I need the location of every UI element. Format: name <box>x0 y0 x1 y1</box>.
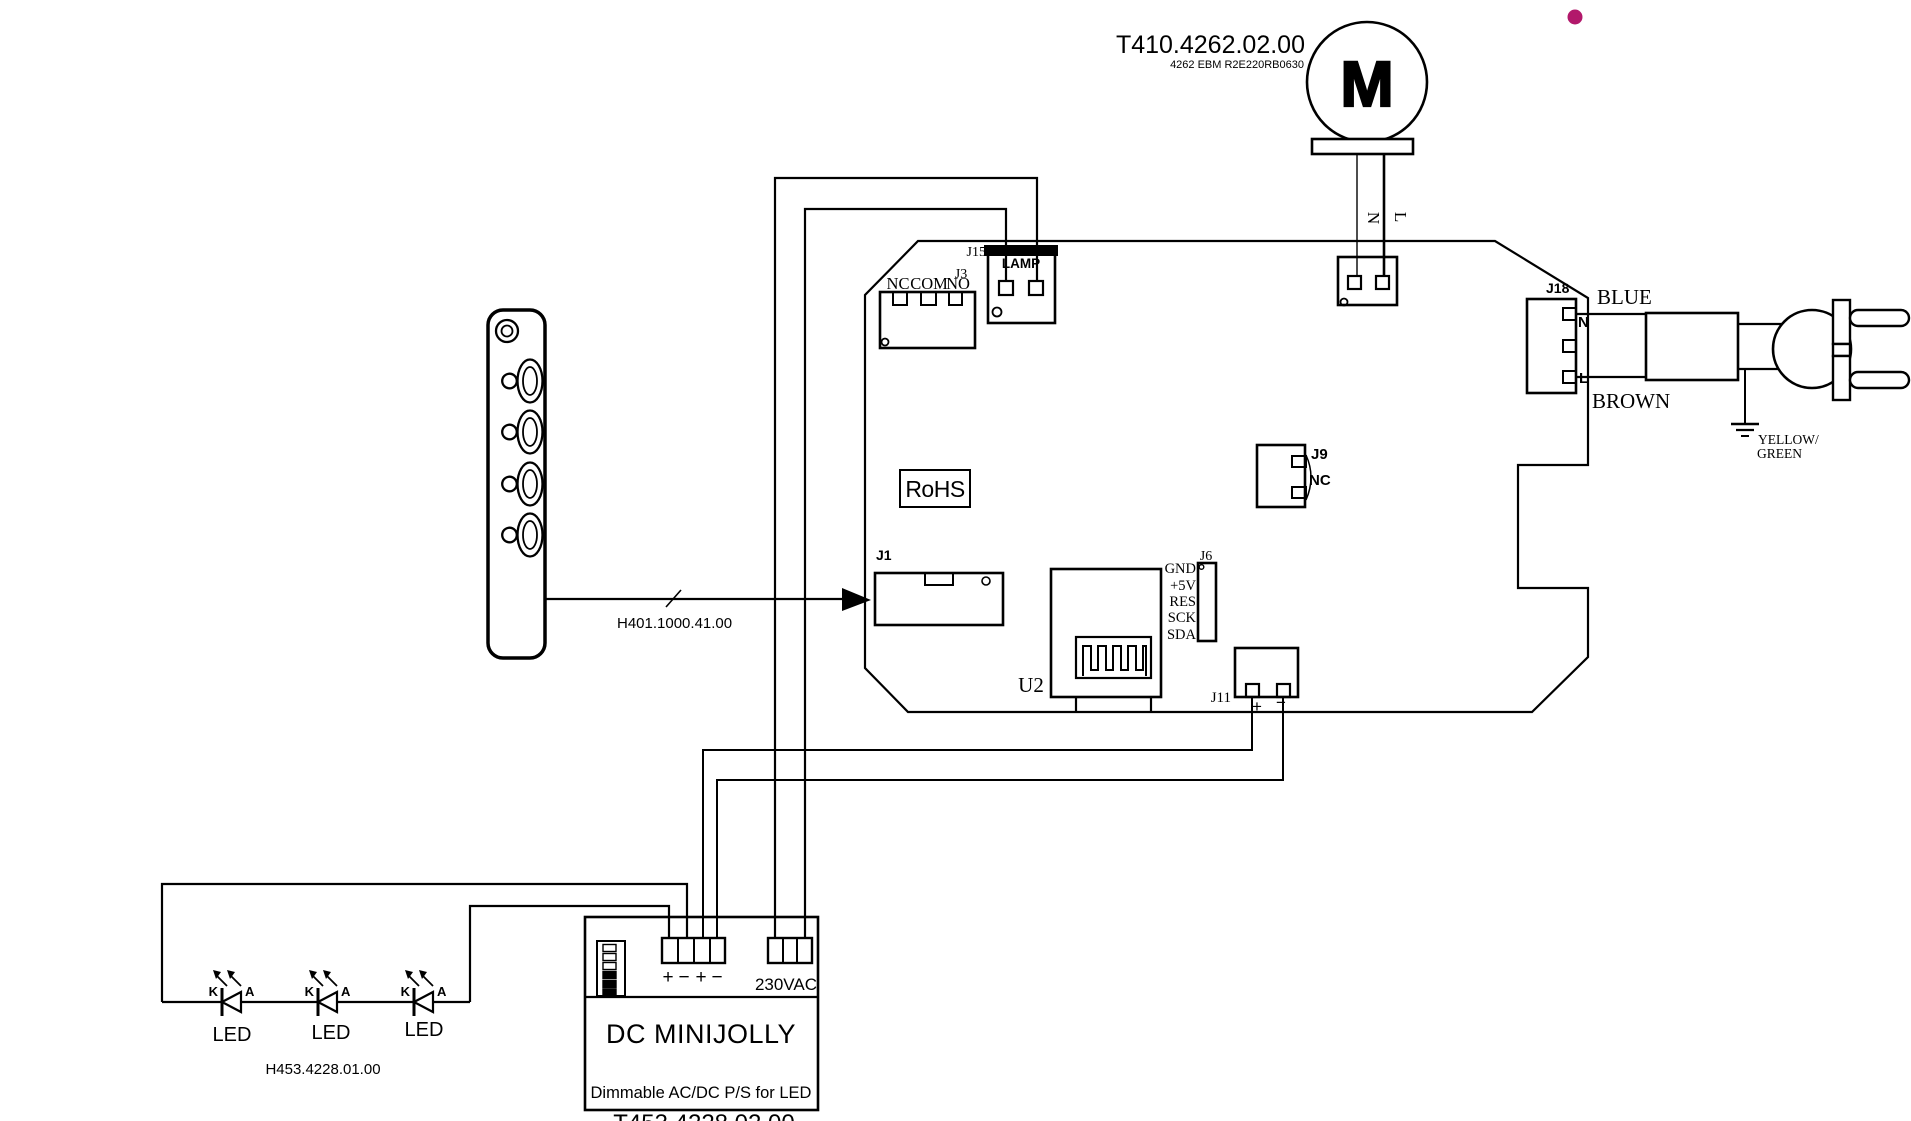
led-label: LED <box>405 1019 444 1041</box>
j11-minus-label: − <box>1276 693 1286 712</box>
annotation-dot <box>1568 10 1583 25</box>
led-diode <box>318 992 337 1012</box>
motor-connector <box>1338 257 1397 306</box>
j1-connector: J1 <box>875 547 1003 625</box>
j3-pin-no: NO <box>946 274 970 293</box>
motor-assembly: M N L <box>1307 22 1427 306</box>
remote-cable: H401.1000.41.00 <box>545 588 871 632</box>
lamp-pin-left <box>999 281 1013 295</box>
j11-pin-plus <box>1246 684 1259 697</box>
led-a-label: A <box>245 984 255 999</box>
psu-dc-terminal-block <box>662 938 725 963</box>
led-k-label: K <box>209 984 219 999</box>
keypad-indicator-inner <box>502 326 513 337</box>
j6-pin-sda: SDA <box>1167 627 1197 643</box>
j3-pin1 <box>893 292 907 305</box>
part-number-title: T410.4262.02.00 <box>1116 31 1305 59</box>
j9-nc-label: NC <box>1309 472 1331 489</box>
j6-pin-res: RES <box>1169 594 1196 610</box>
led-supply-wire <box>470 906 669 1002</box>
lamp-pin1-mark <box>993 308 1002 317</box>
relay-connector-j3: J3 NC COM NO <box>880 267 975 348</box>
keypad-button-1[interactable] <box>502 360 542 403</box>
psu-name: DC MINIJOLLY <box>606 1019 796 1049</box>
board-outline <box>865 241 1588 712</box>
j18-pin-n <box>1563 308 1576 320</box>
psu-minijolly: + − + − 230VAC DC MINIJOLLY Dimmable AC/… <box>585 917 818 1121</box>
j6-pin1-mark <box>1199 565 1204 570</box>
rohs-mark: RoHS <box>900 470 970 507</box>
j11-plus-label: + <box>1252 697 1262 716</box>
j6-pin-gnd: GND <box>1165 561 1196 577</box>
earth-label-line1: YELLOW/ <box>1758 432 1819 447</box>
brown-wire-label: BROWN <box>1592 389 1670 413</box>
led-label: LED <box>312 1022 351 1044</box>
led-symbol-1: K A LED <box>209 970 255 1046</box>
dc-terminal-4: − <box>711 967 722 988</box>
j18-pin-mid <box>1563 340 1576 352</box>
cord-block <box>1646 313 1738 380</box>
keypad-button-3[interactable] <box>502 463 542 506</box>
part-number-subtitle: 4262 EBM R2E220RB0630 <box>1170 59 1304 71</box>
j11-connector: J11 + − <box>703 648 1298 938</box>
u2-socket-comb <box>1083 646 1146 676</box>
psu-part-number: T453.4228.02.00 <box>613 1110 795 1121</box>
lamp-label: LAMP <box>1002 256 1040 271</box>
led-symbol-2: K A LED <box>305 970 351 1044</box>
dc-terminal-2: − <box>678 967 689 988</box>
j1-body <box>875 573 1003 625</box>
cable-arrowhead <box>842 588 871 611</box>
motor-base <box>1312 139 1413 154</box>
j15-label: J15 <box>967 245 986 260</box>
led-a-label: A <box>341 984 351 999</box>
led-symbol-3: K A LED <box>401 970 447 1041</box>
led-diode <box>222 992 241 1012</box>
psu-description: Dimmable AC/DC P/S for LED <box>591 1084 812 1102</box>
j18-label: J18 <box>1546 280 1570 296</box>
rohs-label: RoHS <box>905 476 965 502</box>
lamp-connector-bar <box>984 245 1058 256</box>
j11-wire-plus <box>703 697 1252 938</box>
earth-ground-icon <box>1731 424 1759 436</box>
earth-label-line2: GREEN <box>1757 446 1802 461</box>
u2-label: U2 <box>1018 673 1044 697</box>
title-block: T410.4262.02.00 4262 EBM R2E220RB0630 <box>1116 31 1305 71</box>
lamp-connector-j15: J15 LAMP <box>967 245 1058 323</box>
j9-connector: J9 NC <box>1257 445 1331 507</box>
j18-n-label: N <box>1578 314 1589 331</box>
led-cable-label: H453.4228.01.00 <box>265 1061 380 1078</box>
j18-body <box>1527 299 1576 393</box>
led-label: LED <box>213 1024 252 1046</box>
lamp-pin-right <box>1029 281 1043 295</box>
mains-cord: BLUE BROWN YELLOW/ GREEN <box>1576 285 1909 461</box>
led-k-label: K <box>401 984 411 999</box>
led-k-label: K <box>305 984 315 999</box>
keypad-button-4[interactable] <box>502 514 542 557</box>
led-diode <box>414 992 433 1012</box>
j18-l-label: L <box>1579 370 1588 387</box>
j3-body <box>880 292 975 348</box>
j3-pin2 <box>921 292 936 305</box>
ac-terminal-label: 230VAC <box>755 975 817 994</box>
remote-cable-label: H401.1000.41.00 <box>617 615 732 632</box>
led-a-label: A <box>437 984 447 999</box>
j11-body <box>1235 648 1298 697</box>
dc-terminal-1: + <box>662 967 673 988</box>
motor-wire-l-label: L <box>1391 212 1410 222</box>
j11-label: J11 <box>1211 690 1231 706</box>
diagram-svg: T410.4262.02.00 4262 EBM R2E220RB0630 M … <box>0 0 1911 1121</box>
j3-pin-nc: NC <box>887 274 910 293</box>
wiring-diagram: T410.4262.02.00 4262 EBM R2E220RB0630 M … <box>0 0 1911 1121</box>
j3-pin-com: COM <box>910 274 948 293</box>
u2-module: U2 <box>1018 569 1161 711</box>
j6-pin-5v: +5V <box>1170 578 1196 594</box>
j6-body <box>1198 563 1216 641</box>
keypad-indicator-outer <box>496 320 518 342</box>
remote-keypad <box>488 310 545 658</box>
blue-wire-label: BLUE <box>1597 285 1652 309</box>
dip-switch-icon[interactable] <box>597 941 625 996</box>
mains-plug-icon <box>1773 300 1909 400</box>
dc-terminal-3: + <box>695 967 706 988</box>
j3-pin3 <box>949 292 962 305</box>
j6-connector: J6 GND +5V RES SCK SDA <box>1165 549 1216 643</box>
j11-wire-minus <box>717 697 1283 938</box>
j9-label: J9 <box>1311 446 1328 463</box>
j1-label: J1 <box>876 547 892 563</box>
psu-ac-terminal-block <box>768 938 812 963</box>
motor-wire-n-label: N <box>1364 212 1383 224</box>
j18-pin-l <box>1563 371 1576 383</box>
keypad-button-2[interactable] <box>502 411 542 454</box>
motor-symbol: M <box>1340 48 1393 120</box>
j6-pin-sck: SCK <box>1168 610 1197 626</box>
j3-pin1-mark <box>882 339 889 346</box>
